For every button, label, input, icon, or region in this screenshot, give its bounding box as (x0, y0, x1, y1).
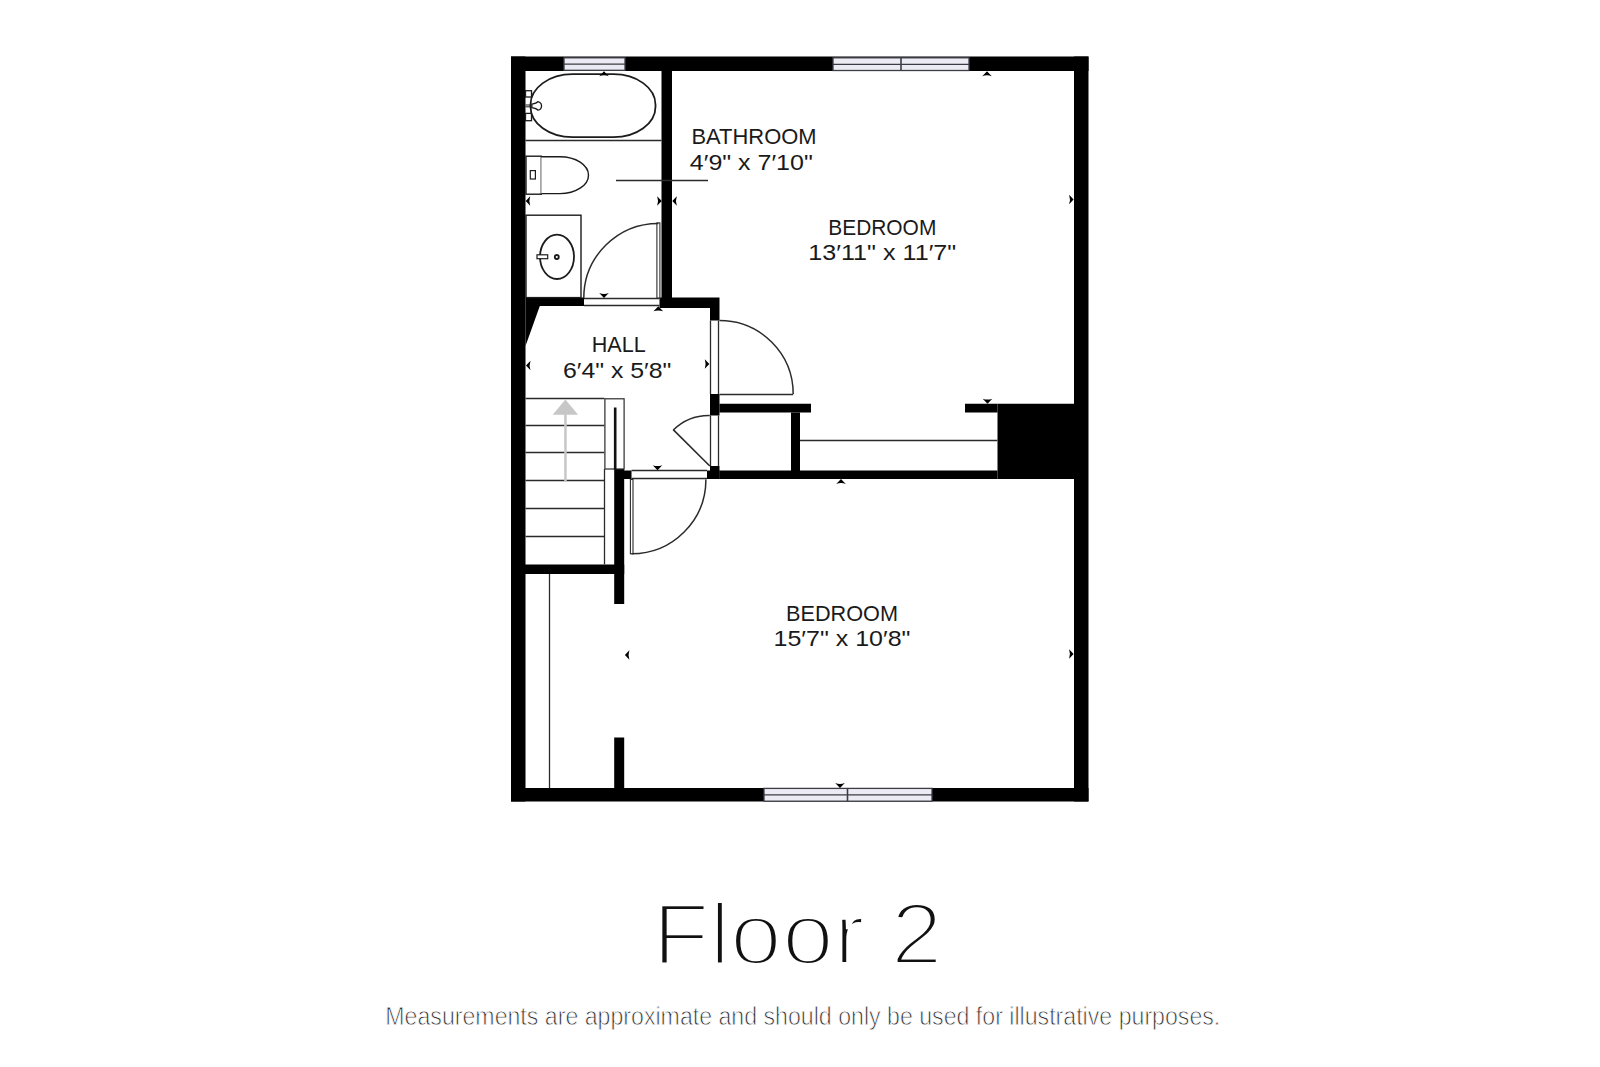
svg-text:15′7" x 10′8": 15′7" x 10′8" (774, 626, 911, 651)
svg-text:BATHROOM: BATHROOM (692, 124, 817, 149)
svg-text:BEDROOM: BEDROOM (786, 601, 898, 626)
svg-text:Floor 2: Floor 2 (653, 885, 943, 982)
svg-text:4′9" x 7′10": 4′9" x 7′10" (690, 150, 813, 175)
svg-text:BEDROOM: BEDROOM (828, 215, 936, 240)
svg-text:6′4" x 5′8": 6′4" x 5′8" (563, 358, 672, 383)
svg-text:HALL: HALL (592, 332, 646, 357)
svg-text:Measurements are approximate a: Measurements are approximate and should … (385, 1002, 1220, 1030)
svg-text:13′11" x 11′7": 13′11" x 11′7" (808, 240, 956, 265)
